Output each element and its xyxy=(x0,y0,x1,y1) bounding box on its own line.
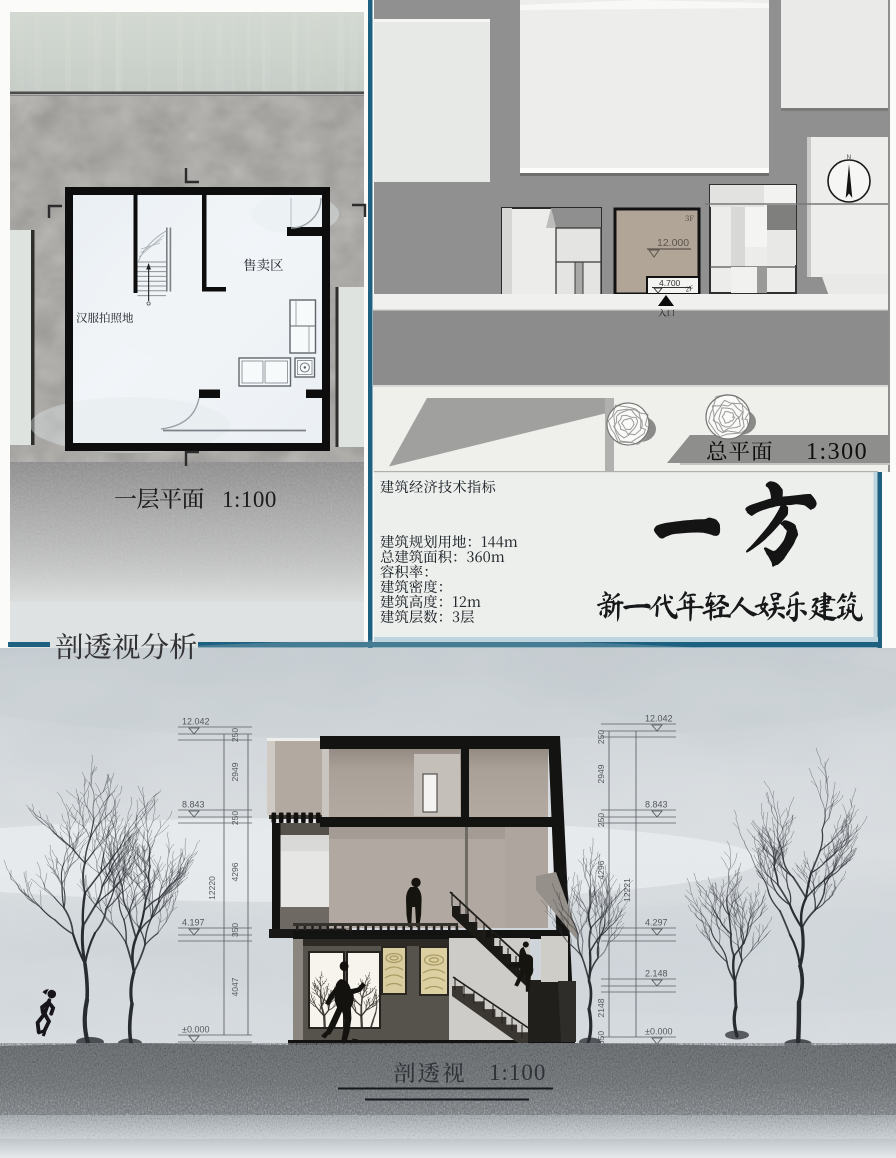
svg-text:1:100: 1:100 xyxy=(489,1060,546,1085)
svg-text:N: N xyxy=(847,154,852,161)
svg-text:250: 250 xyxy=(596,813,606,827)
svg-text:250: 250 xyxy=(596,730,606,744)
svg-text:12.000: 12.000 xyxy=(657,237,689,249)
svg-text:12220: 12220 xyxy=(207,876,217,900)
svg-text:4.197: 4.197 xyxy=(182,918,205,928)
svg-text:12.042: 12.042 xyxy=(182,717,210,727)
svg-text:350: 350 xyxy=(230,923,240,937)
svg-text:1:300: 1:300 xyxy=(806,439,868,465)
svg-text:8.843: 8.843 xyxy=(182,800,205,810)
svg-text:4.297: 4.297 xyxy=(645,918,668,928)
svg-text:2148: 2148 xyxy=(596,998,606,1017)
svg-text:4047: 4047 xyxy=(230,977,240,996)
svg-text:4.700: 4.700 xyxy=(659,278,681,288)
svg-text:250: 250 xyxy=(230,811,240,825)
svg-text:4296: 4296 xyxy=(230,862,240,881)
svg-text:±0.000: ±0.000 xyxy=(182,1025,209,1035)
svg-text:12.042: 12.042 xyxy=(645,714,673,724)
svg-text:250: 250 xyxy=(230,728,240,742)
svg-text:1:100: 1:100 xyxy=(222,487,277,512)
svg-text:2949: 2949 xyxy=(230,762,240,781)
svg-text:2.148: 2.148 xyxy=(645,969,668,979)
svg-text:2949: 2949 xyxy=(596,764,606,783)
svg-text:8.843: 8.843 xyxy=(645,800,668,810)
svg-text:±0.000: ±0.000 xyxy=(645,1027,672,1037)
